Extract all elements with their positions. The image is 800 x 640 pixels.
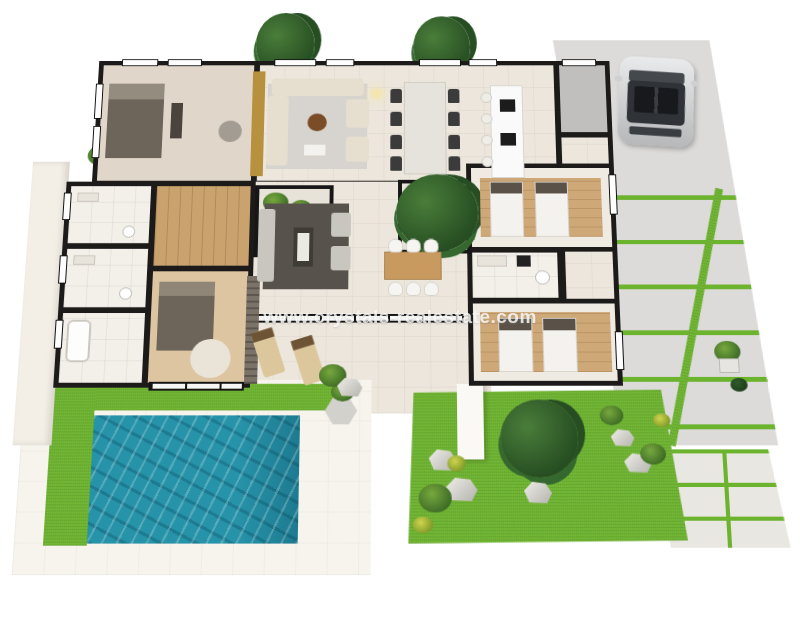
lounge-table xyxy=(293,227,313,266)
bed-single xyxy=(535,182,570,237)
armchair xyxy=(346,99,369,127)
armchair xyxy=(346,137,369,162)
sliding-door-master xyxy=(148,382,244,391)
outdoor-chair xyxy=(388,282,403,296)
car-roof-panel xyxy=(634,86,679,115)
bar-stool xyxy=(480,92,492,103)
window xyxy=(326,59,355,66)
bar-stool xyxy=(481,114,493,125)
bed-single xyxy=(542,318,578,372)
sink xyxy=(77,193,99,202)
window xyxy=(274,59,316,66)
garden-white-wall xyxy=(457,384,485,460)
window xyxy=(608,174,617,214)
bed-master-top xyxy=(105,84,165,159)
cooktop xyxy=(500,99,516,111)
dining-chair xyxy=(390,112,402,126)
bed-bench xyxy=(170,103,183,138)
bathroom-cabinet xyxy=(517,255,531,266)
car-mirror xyxy=(615,76,623,82)
bar-stool xyxy=(481,135,493,146)
headboard xyxy=(499,319,531,331)
room-corridor-left xyxy=(148,182,256,271)
dining-chair xyxy=(448,135,460,149)
sliding-door-terrace xyxy=(250,314,464,323)
dining-chair xyxy=(390,156,402,170)
window xyxy=(122,59,159,66)
window xyxy=(562,59,597,66)
dining-chair xyxy=(448,112,460,126)
bathtub xyxy=(65,320,92,363)
headboard xyxy=(543,319,575,331)
dining-chair xyxy=(390,89,402,103)
outdoor-chair xyxy=(388,239,403,253)
cooktop xyxy=(500,133,516,146)
floorplan-scene xyxy=(0,16,800,640)
garden-bush xyxy=(640,443,667,464)
swimming-pool xyxy=(87,415,300,543)
lounge-chair xyxy=(331,246,351,270)
fence-planter-box xyxy=(719,358,740,373)
lounge-sofa xyxy=(257,209,276,282)
outdoor-chair xyxy=(406,282,421,296)
car-mirror xyxy=(691,81,699,87)
window xyxy=(468,59,497,66)
floor-lamp xyxy=(371,89,382,99)
garden-shrub-yellow xyxy=(412,517,433,534)
bathroom-vanity xyxy=(477,255,507,266)
bed-pillows xyxy=(159,282,215,296)
outdoor-chair xyxy=(424,239,439,253)
sofa-sectional-left xyxy=(266,96,289,165)
garden-shrub-yellow xyxy=(653,413,671,427)
window xyxy=(615,331,625,370)
dining-chair xyxy=(448,89,460,103)
garden-bush xyxy=(419,484,452,513)
dining-chair xyxy=(390,135,402,149)
room-bathroom-b xyxy=(58,244,153,312)
floorplan-render: { "watermark": { "text": "www.crystals-r… xyxy=(0,0,800,640)
fence-star-plant xyxy=(730,378,748,392)
table-runner xyxy=(297,233,309,261)
headboard xyxy=(536,183,568,194)
car xyxy=(617,55,694,148)
dining-chair xyxy=(448,156,460,170)
room-utility xyxy=(554,61,612,137)
side-table xyxy=(303,144,326,157)
garden-bush xyxy=(599,405,623,425)
window xyxy=(168,59,203,66)
room-bathroom-a xyxy=(62,182,156,248)
toilet xyxy=(535,270,550,284)
window xyxy=(419,59,461,66)
sofa-sectional-top xyxy=(272,78,364,96)
bar-stool xyxy=(481,156,493,167)
headboard xyxy=(491,183,522,194)
sink xyxy=(73,255,95,264)
lounge-chair xyxy=(331,213,351,237)
bed-pillows xyxy=(108,84,164,100)
outdoor-dining-table xyxy=(384,252,442,280)
bed-single xyxy=(490,182,524,237)
dining-table xyxy=(404,82,447,175)
outdoor-chair xyxy=(406,239,421,253)
outdoor-chair xyxy=(424,282,439,296)
garden-shrub-yellow xyxy=(447,455,466,471)
bed-single xyxy=(498,318,533,372)
